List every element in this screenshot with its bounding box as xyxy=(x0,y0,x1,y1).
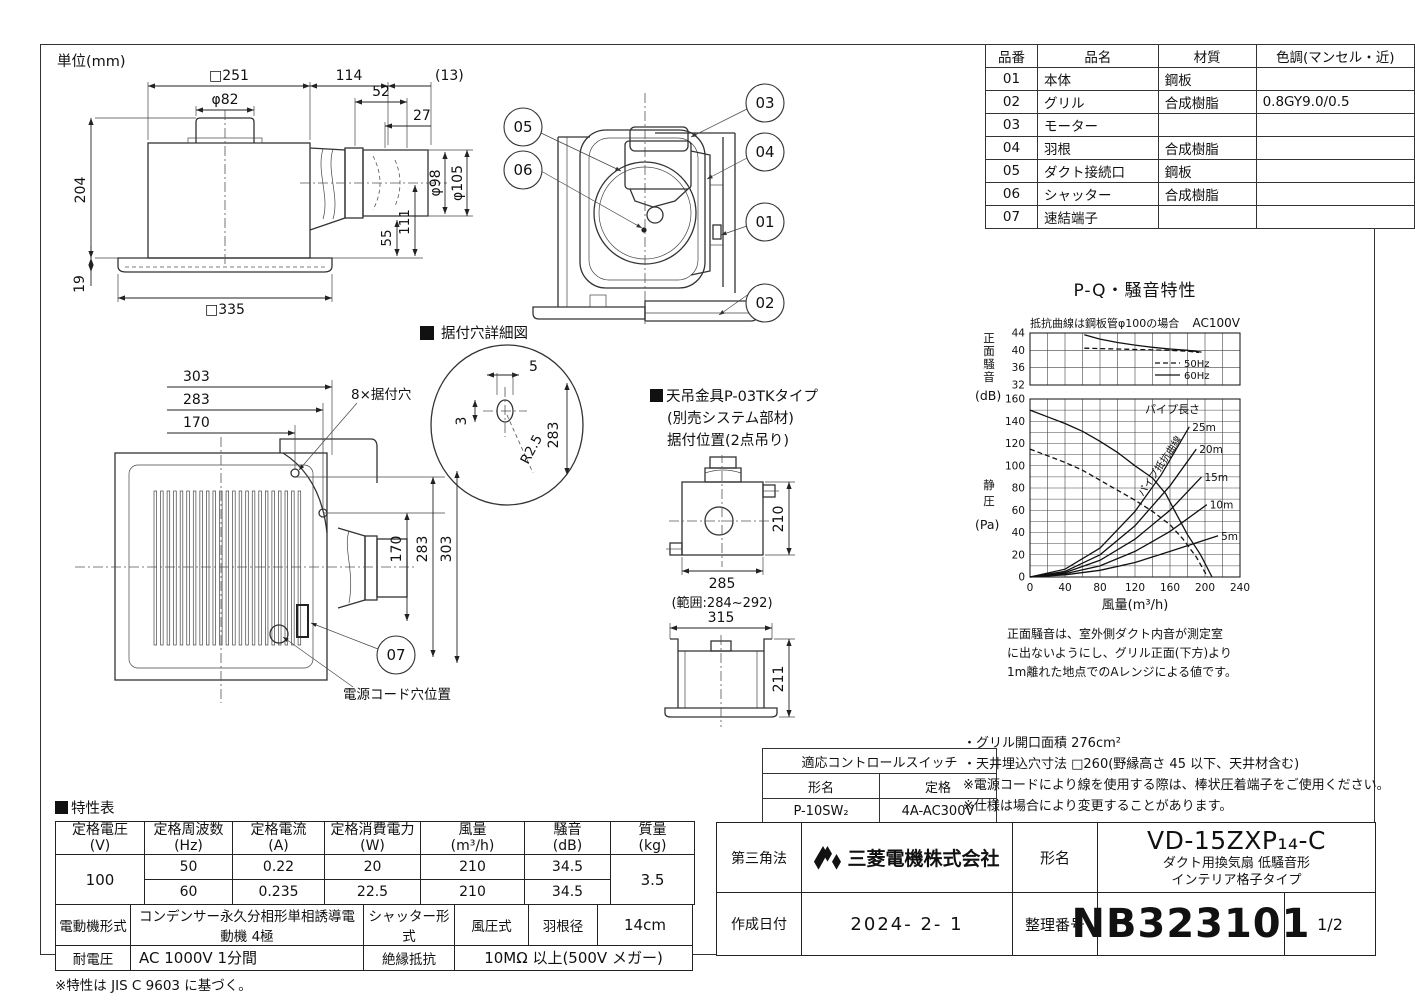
svg-text:06: 06 xyxy=(513,161,532,179)
dim-114: 114 xyxy=(336,68,363,84)
company-name: 三菱電機株式会社 xyxy=(847,844,999,871)
spec-note: ※特性は JIS C 9603 に基づく。 xyxy=(55,974,695,994)
table-row: 01本体鋼板 xyxy=(986,68,1415,91)
callout-02: 02 xyxy=(719,284,784,322)
section-marker xyxy=(420,326,434,340)
grille-louvers xyxy=(154,491,301,645)
detail-title: 据付穴詳細図 xyxy=(441,325,528,342)
svg-text:20m: 20m xyxy=(1199,444,1223,456)
svg-text:パイプ長さ: パイプ長さ xyxy=(1145,403,1200,416)
svg-text:01: 01 xyxy=(755,213,774,231)
mass: 3.5 xyxy=(611,855,695,905)
svg-text:40: 40 xyxy=(1012,345,1025,357)
col-header: 形名 xyxy=(763,774,880,799)
svg-text:160: 160 xyxy=(1005,394,1025,406)
mitsubishi-logo-icon xyxy=(814,846,841,870)
control-switch-title: 適応コントロールスイッチ xyxy=(763,749,997,774)
plan-vdim-303: 303 xyxy=(439,536,455,563)
svg-text:44: 44 xyxy=(1012,328,1026,340)
callout-01: 01 xyxy=(721,203,784,241)
dim-phi82: φ82 xyxy=(211,92,238,108)
svg-text:240: 240 xyxy=(1230,582,1250,594)
svg-text:07: 07 xyxy=(386,646,405,664)
svg-text:正: 正 xyxy=(983,331,995,345)
table-row: 100 50 0.22 20 210 34.5 3.5 xyxy=(56,855,695,880)
svg-text:面: 面 xyxy=(983,344,995,358)
model-label: 形名 xyxy=(1013,823,1098,892)
svg-text:15m: 15m xyxy=(1205,472,1229,484)
svg-text:静: 静 xyxy=(983,478,995,492)
svg-text:160: 160 xyxy=(1160,582,1180,594)
bracket-drawing: 210 285 (範囲:284~292) 315 211 xyxy=(655,455,945,745)
page-number: 1/2 xyxy=(1285,893,1375,955)
svg-text:80: 80 xyxy=(1012,483,1025,495)
pq-chart-block: P-Q・騒音特性 抵抗曲線は鋼板管φ100の場合AC100V4440363216… xyxy=(975,276,1395,682)
dim-52: 52 xyxy=(372,84,390,100)
parts-header-row: 品番 品名 材質 色調(マンセル・近) xyxy=(986,45,1415,68)
svg-text:(dB): (dB) xyxy=(975,388,1001,403)
pq-chart: 抵抗曲線は鋼板管φ100の場合AC100V4440363216014012010… xyxy=(975,301,1390,619)
bracket-dim-315: 315 xyxy=(708,610,735,626)
callout-04: 04 xyxy=(707,133,784,179)
svg-text:20: 20 xyxy=(1012,549,1025,561)
col-header: 品名 xyxy=(1038,45,1159,68)
svg-text:圧: 圧 xyxy=(983,494,995,508)
table-row: 05ダクト接続口鋼板 xyxy=(986,160,1415,183)
svg-text:40: 40 xyxy=(1012,527,1025,539)
col-header: 色調(マンセル・近) xyxy=(1256,45,1414,68)
creation-date: 2024- 2- 1 xyxy=(802,893,1013,955)
note-line: ・天井埋込穴寸法 □260(野縁高さ 45 以下、天井材含む) xyxy=(963,754,1403,775)
callout-03: 03 xyxy=(691,84,784,137)
table-row: 02グリル合成樹脂0.8GY9.0/0.5 xyxy=(986,91,1415,114)
plan-dim-170: 170 xyxy=(183,415,210,431)
svg-text:140: 140 xyxy=(1005,416,1025,428)
notes-block: ・グリル開口面積 276cm² ・天井埋込穴寸法 □260(野縁高さ 45 以下… xyxy=(963,733,1403,817)
spec-title: 特性表 xyxy=(55,797,695,818)
section-marker xyxy=(55,801,68,814)
svg-text:5m: 5m xyxy=(1221,531,1238,543)
table-row: 06シャッター合成樹脂 xyxy=(986,183,1415,206)
dim-w251: □251 xyxy=(209,68,249,84)
svg-text:60: 60 xyxy=(1012,505,1025,517)
detail-dim-r25: R2.5 xyxy=(517,432,546,467)
svg-text:AC100V: AC100V xyxy=(1193,316,1241,330)
model-desc: インテリア格子タイプ xyxy=(1171,872,1301,889)
switch-model: P-10SW₂ xyxy=(763,799,880,824)
svg-text:0: 0 xyxy=(1027,582,1034,594)
dim-w335: □335 xyxy=(205,302,245,318)
bracket-dim-285: 285 xyxy=(709,576,736,592)
title-block: 第三角法 三菱電機株式会社 形名 VD-15ZXP₁₄-C ダクト用換気扇 低騒… xyxy=(716,822,1376,956)
bracket-title-line2: (別売システム部材) xyxy=(667,408,818,430)
svg-text:騒: 騒 xyxy=(983,357,995,371)
bracket-title-line3: 据付位置(2点吊り) xyxy=(667,430,818,452)
table-row: 60 0.235 22.5 210 34.5 xyxy=(56,880,695,905)
unit-label: 単位(mm) xyxy=(57,53,126,70)
svg-text:40: 40 xyxy=(1058,582,1071,594)
bracket-title: 天吊金具P-03TKタイプ (別売システム部材) 据付位置(2点吊り) xyxy=(650,386,818,452)
svg-text:04: 04 xyxy=(755,143,774,161)
dim-13: (13) xyxy=(435,68,464,84)
voltage: 100 xyxy=(56,855,145,905)
bracket-title-line1: 天吊金具P-03TKタイプ xyxy=(666,389,818,405)
plan-view-drawing: 据付穴詳細図 5 3 R2.5 283 xyxy=(55,325,630,730)
callout-06: 06 xyxy=(504,151,642,228)
chart-footnote: 正面騒音は、室外側ダクト内音が測定室 に出ないようにし、グリル正面(下方)より … xyxy=(1007,625,1395,682)
dim-55: 55 xyxy=(379,229,395,246)
parts-table: 品番 品名 材質 色調(マンセル・近) 01本体鋼板 02グリル合成樹脂0.8G… xyxy=(985,44,1415,229)
model-desc: ダクト用換気扇 低騒音形 xyxy=(1163,855,1310,872)
col-header: 品番 xyxy=(986,45,1038,68)
date-label: 作成日付 xyxy=(717,893,802,955)
chart-title: P-Q・騒音特性 xyxy=(975,276,1295,301)
svg-text:50Hz: 50Hz xyxy=(1184,359,1210,370)
svg-text:02: 02 xyxy=(755,294,774,312)
model-cell: VD-15ZXP₁₄-C ダクト用換気扇 低騒音形 インテリア格子タイプ xyxy=(1098,823,1375,892)
mounting-holes-label: 8×据付穴 xyxy=(351,387,411,403)
svg-text:03: 03 xyxy=(755,94,774,112)
section-view-drawing: 05 06 03 04 01 02 xyxy=(495,75,830,337)
bracket-dim-range: (範囲:284~292) xyxy=(671,596,772,611)
table-row: 耐電圧 AC 1000V 1分間 絶縁抵抗 10MΩ 以上(500V メガー) xyxy=(56,945,693,970)
plan-dim-303: 303 xyxy=(183,369,210,385)
detail-dim-3: 3 xyxy=(454,417,470,426)
svg-text:25m: 25m xyxy=(1192,422,1216,434)
plan-dim-283: 283 xyxy=(183,392,210,408)
svg-text:0: 0 xyxy=(1018,572,1025,584)
datasheet-page: 単位(mm) □251 114 (13) φ82 xyxy=(0,0,1415,1000)
svg-text:120: 120 xyxy=(1005,438,1025,450)
svg-text:抵抗曲線は鋼板管φ100の場合: 抵抗曲線は鋼板管φ100の場合 xyxy=(1030,316,1179,330)
spec-table-lower: 電動機形式 コンデンサー永久分相形単相誘導電動機 4極 シャッター形式 風圧式 … xyxy=(55,904,693,971)
table-row: 電動機形式 コンデンサー永久分相形単相誘導電動機 4極 シャッター形式 風圧式 … xyxy=(56,904,693,945)
svg-text:200: 200 xyxy=(1195,582,1215,594)
note-line: ※仕様は場合により変更することがあります。 xyxy=(963,796,1403,817)
spec-section: 特性表 定格電圧(V) 定格周波数(Hz) 定格電流(A) 定格消費電力(W) … xyxy=(55,797,695,994)
svg-text:80: 80 xyxy=(1093,582,1106,594)
svg-text:10m: 10m xyxy=(1210,500,1234,512)
dim-27: 27 xyxy=(413,108,431,124)
note-line: ※電源コードにより線を使用する際は、棒状圧着端子をご使用ください。 xyxy=(963,775,1403,796)
detail-dim-283: 283 xyxy=(546,422,562,449)
svg-text:100: 100 xyxy=(1005,460,1025,472)
svg-text:風量(m³/h): 風量(m³/h) xyxy=(1102,598,1169,613)
dim-phi98: φ98 xyxy=(428,169,444,196)
svg-text:(Pa): (Pa) xyxy=(975,517,999,532)
svg-text:32: 32 xyxy=(1012,380,1025,392)
svg-text:音: 音 xyxy=(983,370,995,384)
svg-text:36: 36 xyxy=(1012,362,1026,374)
detail-dim-5: 5 xyxy=(529,359,538,375)
svg-text:05: 05 xyxy=(513,118,532,136)
doc-number: NB323101 xyxy=(1098,893,1285,955)
dim-19: 19 xyxy=(72,275,88,293)
side-view-drawing: 単位(mm) □251 114 (13) φ82 xyxy=(55,50,495,330)
dim-204: 204 xyxy=(73,177,89,204)
table-row: 07速結端子 xyxy=(986,206,1415,229)
dim-111: 111 xyxy=(397,209,413,235)
note-line: ・グリル開口面積 276cm² xyxy=(963,733,1403,754)
plan-vdim-170: 170 xyxy=(389,536,405,563)
company-name-cell: 三菱電機株式会社 xyxy=(814,844,999,871)
dim-phi105: φ105 xyxy=(450,165,466,201)
table-row: 03モーター xyxy=(986,114,1415,137)
bracket-dim-210: 210 xyxy=(771,506,787,533)
model-number: VD-15ZXP₁₄-C xyxy=(1147,826,1326,855)
spec-table: 定格電圧(V) 定格周波数(Hz) 定格電流(A) 定格消費電力(W) 風量(m… xyxy=(55,821,695,905)
svg-text:60Hz: 60Hz xyxy=(1184,371,1210,382)
section-marker xyxy=(650,389,663,402)
table-row: 04羽根合成樹脂 xyxy=(986,137,1415,160)
control-switch-table: 適応コントロールスイッチ 形名 定格 P-10SW₂ 4A-AC300V xyxy=(762,748,997,824)
projection-method: 第三角法 xyxy=(717,823,802,892)
plan-vdim-283: 283 xyxy=(415,536,431,563)
bracket-dim-211: 211 xyxy=(771,666,787,693)
svg-text:120: 120 xyxy=(1125,582,1145,594)
cord-hole-label: 電源コード穴位置 xyxy=(343,687,451,703)
col-header: 材質 xyxy=(1158,45,1256,68)
